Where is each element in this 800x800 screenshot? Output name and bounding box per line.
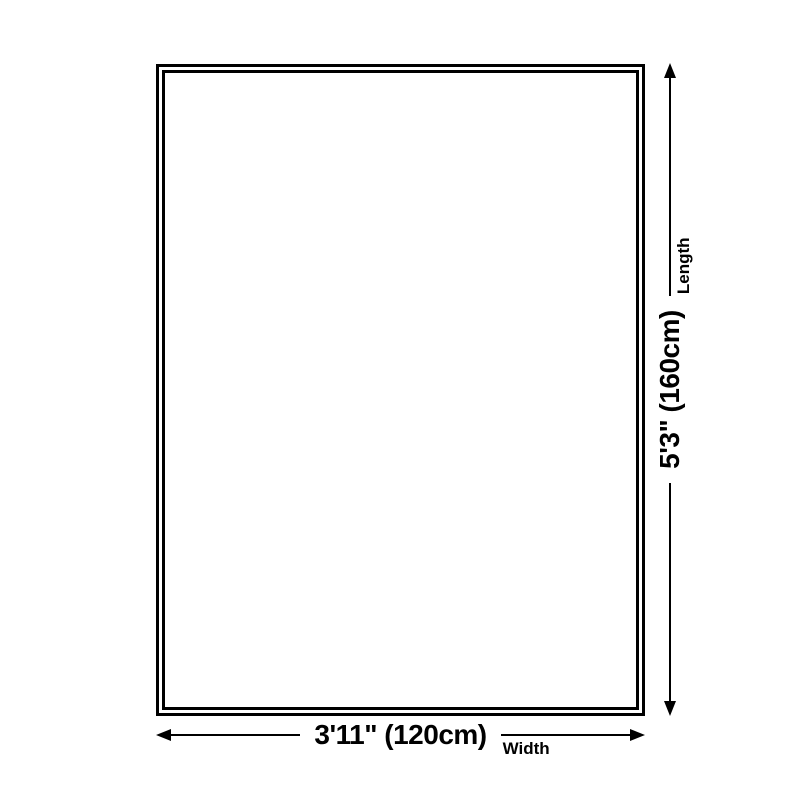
length-dimension: 5'3" (160cm) Length <box>648 63 692 716</box>
rug-outline-inner <box>162 70 639 710</box>
length-dimension-value: 5'3" (160cm) <box>656 296 684 483</box>
arrow-down-icon <box>664 701 676 716</box>
width-dimension: 3'11" (120cm) Width <box>156 713 645 757</box>
arrow-right-icon <box>630 729 645 741</box>
length-axis-label: Length <box>675 237 692 294</box>
width-dimension-value: 3'11" (120cm) <box>300 721 500 749</box>
arrow-left-icon <box>156 729 171 741</box>
length-dimension-line-top: Length <box>669 78 671 296</box>
length-dimension-line-bottom <box>669 483 671 701</box>
width-dimension-line-left <box>171 734 300 736</box>
rug-size-diagram: 3'11" (120cm) Width 5'3" (160cm) Length <box>0 0 800 800</box>
width-dimension-line-right: Width <box>501 734 630 736</box>
rug-outline-outer <box>156 64 645 716</box>
arrow-up-icon <box>664 63 676 78</box>
width-axis-label: Width <box>503 740 550 757</box>
